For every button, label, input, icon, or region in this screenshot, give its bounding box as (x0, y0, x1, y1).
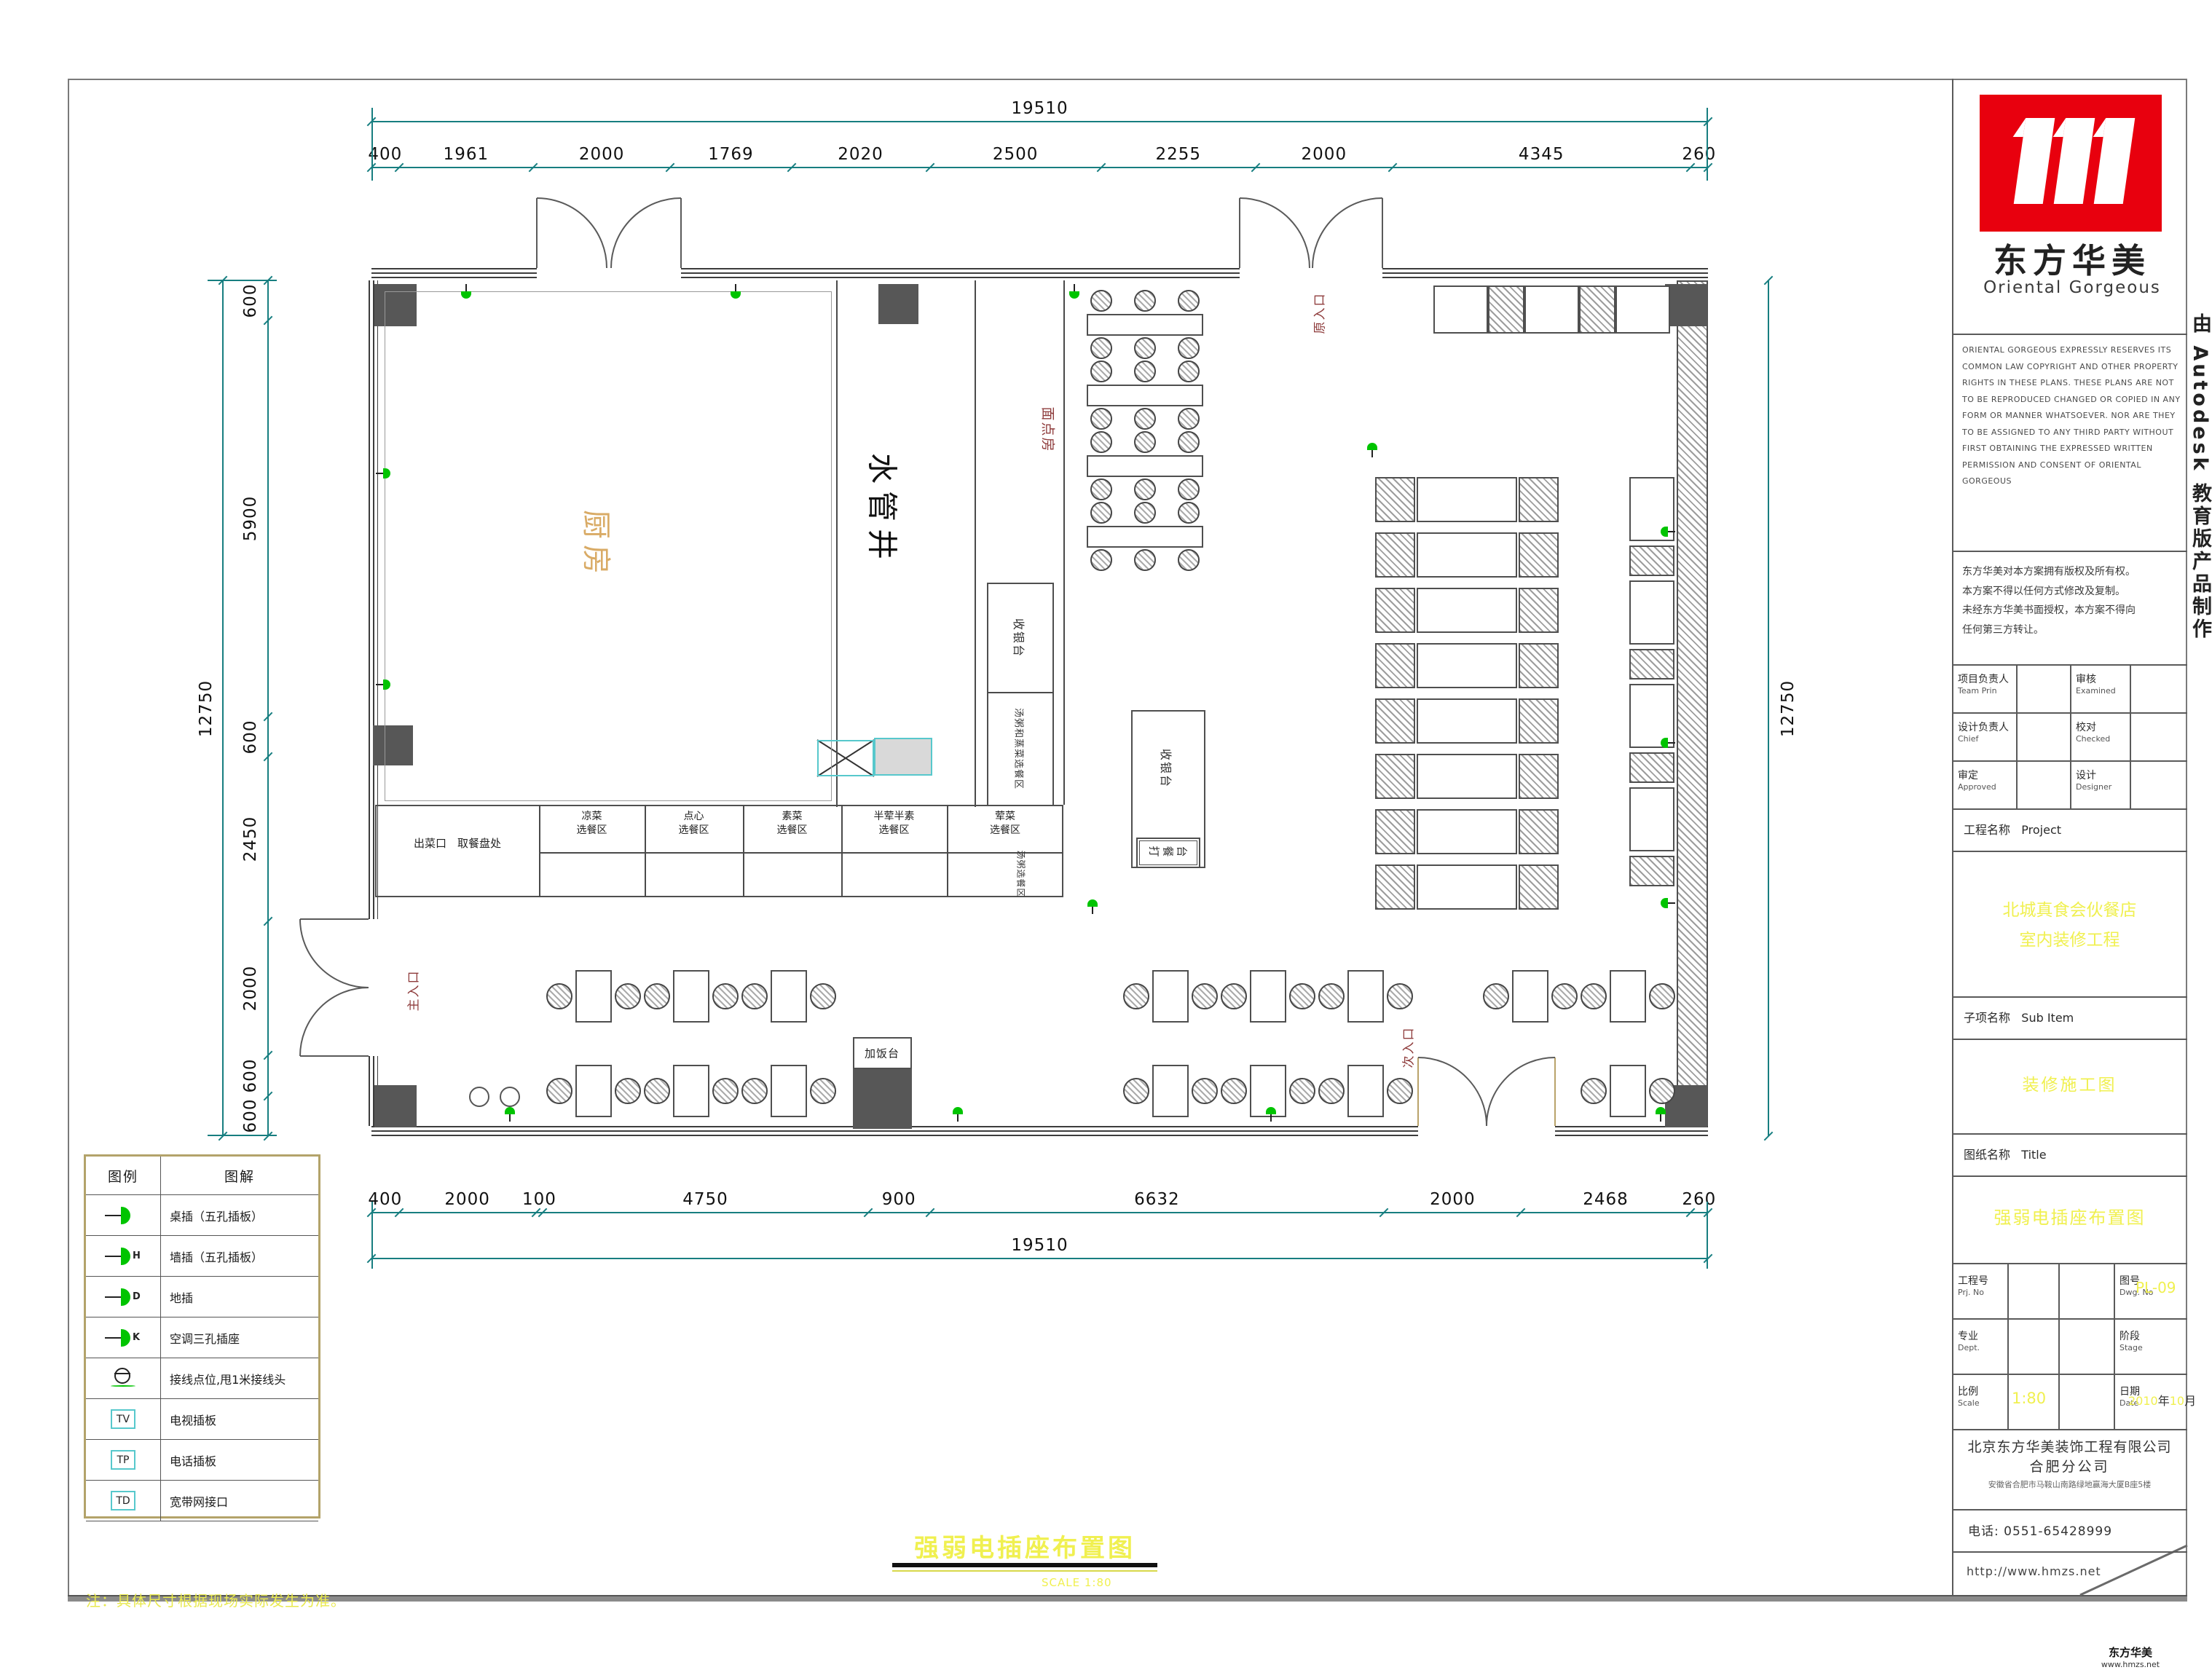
titleblock-line (1952, 334, 2187, 335)
dining-table (1087, 526, 1203, 548)
dimension-total-label: 19510 (1011, 1236, 1068, 1255)
chair (1178, 478, 1200, 500)
plan-label: 原入口 (1310, 293, 1328, 334)
chair (1134, 408, 1156, 430)
personnel-label: 审核Examined (2076, 671, 2127, 696)
dimension-label: 2000 (241, 966, 260, 1012)
chair (1090, 290, 1112, 312)
socket-icon (1661, 527, 1675, 537)
socket-icon (376, 468, 390, 478)
plan-label: 主入口 (404, 970, 422, 1012)
dimension-label: 6632 (1134, 1190, 1180, 1209)
cashier-strip-divider (987, 692, 1054, 693)
titleblock-line (2070, 664, 2071, 808)
booth-seat (1519, 477, 1559, 522)
chair (1134, 431, 1156, 453)
dimension-label: 400 (368, 145, 402, 164)
chair (1178, 408, 1200, 430)
dining-table (1417, 698, 1517, 744)
dimension-label: 260 (1682, 145, 1716, 164)
booth-seat (1629, 856, 1674, 886)
dining-table (771, 970, 807, 1023)
chair (1192, 983, 1218, 1009)
dining-table (1087, 314, 1203, 336)
chair (1387, 1078, 1413, 1104)
wall-bottom (1555, 1126, 1708, 1138)
booth-seat (1629, 545, 1674, 576)
wall-top (1382, 268, 1708, 280)
chair (1289, 1078, 1315, 1104)
booth-seat (1519, 754, 1559, 799)
dimension-total-label: 12750 (1779, 680, 1798, 736)
personnel-label: 设计负责人Chief (1958, 720, 2013, 744)
grid-value: 1:80 (2012, 1390, 2055, 1407)
chair (712, 983, 739, 1009)
booth-seat (1519, 532, 1559, 578)
dining-table (1610, 1065, 1646, 1117)
dimension-line (267, 280, 269, 1136)
dimension-label: 1769 (708, 145, 754, 164)
titleblock-line (1952, 551, 2187, 552)
partition-shaft-east (975, 280, 976, 807)
socket-icon (376, 680, 390, 690)
column (853, 1069, 912, 1129)
chair (712, 1078, 739, 1104)
chair (1551, 983, 1578, 1009)
chair (1221, 1078, 1247, 1104)
dining-table (1417, 477, 1517, 522)
grid-value: PL-09 (2136, 1279, 2185, 1296)
dimension-label: 2468 (1583, 1190, 1629, 1209)
dining-table (575, 970, 612, 1023)
stool (469, 1087, 489, 1107)
counter-cell-label: 半荤半素选餐区 (841, 810, 947, 838)
counter-cell-label: 荤菜选餐区 (947, 810, 1063, 838)
plan-label: 加饭台 (865, 1046, 900, 1061)
grid-label: 专业Dept. (1958, 1328, 2006, 1352)
plan-label: 汤粥选餐区 (1015, 850, 1028, 897)
titleblock-line (2007, 1263, 2009, 1429)
chair (1289, 983, 1315, 1009)
dimension-label: 2500 (993, 145, 1039, 164)
dining-table (1629, 787, 1674, 851)
booth-seat (1519, 864, 1559, 910)
titleblock-line (2058, 1263, 2060, 1429)
partition-kitchen-east (836, 280, 838, 807)
chair (1090, 431, 1112, 453)
booth-seat (1375, 698, 1415, 744)
titleblock-line (1952, 1429, 2187, 1430)
chair (615, 1078, 641, 1104)
chair (810, 983, 836, 1009)
titleblock-line (1952, 808, 2187, 810)
stool (500, 1087, 520, 1107)
dining-table (673, 970, 709, 1023)
booth-table (1524, 285, 1579, 334)
chair (1178, 549, 1200, 571)
grid-label: 阶段Stage (2119, 1328, 2168, 1352)
socket-icon (1266, 1107, 1276, 1122)
chair (1134, 337, 1156, 359)
plan-label: 次入口 (1398, 1027, 1417, 1068)
dimension-label: 4750 (682, 1190, 728, 1209)
chair (1192, 1078, 1218, 1104)
chair (810, 1078, 836, 1104)
dining-table (1417, 864, 1517, 910)
plan-label: 收银台 (1158, 749, 1176, 788)
dimension-label: 2255 (1155, 145, 1201, 164)
grid-label: 比例Scale (1958, 1384, 2006, 1408)
booth-seat (1519, 698, 1559, 744)
chair (1483, 983, 1509, 1009)
dim-extension (208, 280, 277, 281)
dimension-total-label: 12750 (197, 680, 216, 736)
dining-table (1512, 970, 1548, 1023)
floor-box-gray (874, 738, 932, 776)
socket-icon (1367, 443, 1377, 457)
booth-seat (1519, 809, 1559, 854)
dimension-line (371, 121, 1708, 122)
dimension-label: 600 (241, 1099, 260, 1133)
chair (1649, 1078, 1675, 1104)
dining-table (1152, 1065, 1189, 1117)
chair (1090, 549, 1112, 571)
chair (644, 1078, 670, 1104)
chair (1090, 337, 1112, 359)
chair (1123, 983, 1149, 1009)
plan-label: 收银台 (1011, 618, 1028, 658)
chair (1134, 290, 1156, 312)
dimension-label: 100 (522, 1190, 556, 1209)
socket-icon (731, 284, 741, 299)
chair (1581, 983, 1607, 1009)
chair (1134, 549, 1156, 571)
dim-extension (1707, 1202, 1708, 1269)
titleblock-line (1952, 1133, 2187, 1135)
titleblock-line (1952, 996, 2187, 998)
dimension-label: 900 (882, 1190, 916, 1209)
counter-cell-label: 点心选餐区 (645, 810, 743, 838)
chair (1178, 290, 1200, 312)
chair (644, 983, 670, 1009)
counter-cell-label: 出菜口 取餐盘处 (378, 836, 537, 851)
dimension-label: 400 (368, 1190, 402, 1209)
wall-top (371, 268, 537, 280)
socket-icon (1661, 738, 1675, 748)
titleblock-line (2016, 664, 2018, 808)
chair (741, 983, 768, 1009)
booth-seat (1375, 809, 1415, 854)
dimension-line (371, 167, 1708, 168)
column (878, 284, 918, 324)
chair (615, 983, 641, 1009)
socket-icon (953, 1107, 963, 1122)
dimension-label: 4345 (1519, 145, 1564, 164)
grid-date-value: 2010年10月 (2128, 1391, 2185, 1409)
personnel-label: 项目负责人Team Prin (1958, 671, 2013, 696)
drawing-sheet: 东方华美 Oriental Gorgeous ORIENTAL GORGEOUS… (0, 0, 2212, 1678)
dimension-label: 2000 (1430, 1190, 1476, 1209)
dining-table (1152, 970, 1189, 1023)
wall-right-hatched (1677, 280, 1708, 1126)
chair (1090, 408, 1112, 430)
titleblock-line (1952, 1551, 2187, 1553)
titleblock-line (1952, 1039, 2187, 1040)
dim-extension (1707, 108, 1708, 181)
titleblock-line (1952, 1263, 2187, 1264)
chair (1581, 1078, 1607, 1104)
dimension-label: 1961 (444, 145, 489, 164)
dining-table (1629, 580, 1674, 645)
dimension-label: 2000 (444, 1190, 490, 1209)
titleblock-line (2114, 1263, 2115, 1429)
dimension-line (1768, 280, 1769, 1136)
chair (1221, 983, 1247, 1009)
chair (1178, 361, 1200, 382)
personnel-label: 审定Approved (1958, 768, 2013, 792)
booth-table (1615, 285, 1670, 334)
dining-table (1417, 809, 1517, 854)
dining-table (673, 1065, 709, 1117)
dimension-label: 5900 (241, 496, 260, 542)
booth-seat (1629, 752, 1674, 783)
dimension-line (371, 1258, 1708, 1259)
personnel-label: 设计Designer (2076, 768, 2127, 792)
chair (1178, 431, 1200, 453)
dimension-label: 600 (241, 720, 260, 754)
chair (1178, 502, 1200, 524)
chair (1178, 337, 1200, 359)
plan-linework (0, 0, 2212, 1678)
booth-seat (1488, 285, 1524, 334)
titleblock-line (2130, 664, 2131, 808)
dimension-label: 2020 (838, 145, 883, 164)
booth-seat (1375, 643, 1415, 688)
dining-table (1610, 970, 1646, 1023)
chair (546, 983, 572, 1009)
booth-seat (1519, 643, 1559, 688)
titleblock-line (1952, 1374, 2187, 1375)
chair (546, 1078, 572, 1104)
chair (1090, 478, 1112, 500)
dim-extension (208, 1135, 277, 1136)
dimension-label: 2450 (241, 816, 260, 862)
socket-icon (461, 284, 471, 299)
titleblock-line (1952, 1509, 2187, 1510)
partition-pastry-east (1063, 280, 1065, 805)
chair (1318, 1078, 1345, 1104)
dining-table (1417, 643, 1517, 688)
dimension-label: 600 (241, 1059, 260, 1093)
chair (1134, 502, 1156, 524)
dining-table (1417, 532, 1517, 578)
dining-table (1087, 455, 1203, 477)
titleblock-line (1952, 1318, 2187, 1320)
socket-icon (1087, 899, 1098, 914)
plan-label: 水管井 (862, 453, 907, 567)
dining-table (771, 1065, 807, 1117)
socket-icon (505, 1107, 515, 1122)
counter-cell-label: 凉菜选餐区 (539, 810, 645, 838)
booth-seat (1629, 649, 1674, 680)
chair (1090, 361, 1112, 382)
chair (1134, 478, 1156, 500)
chair (741, 1078, 768, 1104)
chair (1318, 983, 1345, 1009)
dining-table (575, 1065, 612, 1117)
booth-seat (1375, 754, 1415, 799)
titleblock-line (1952, 851, 2187, 852)
booth-table (1433, 285, 1488, 334)
chair (1387, 983, 1413, 1009)
grid-label: 工程号Prj. No (1958, 1273, 2006, 1297)
dining-table (1347, 1065, 1384, 1117)
titleblock-line (1952, 1175, 2187, 1177)
column (1665, 284, 1707, 326)
dimension-label: 600 (241, 283, 260, 318)
plan-label: 厨房 (578, 510, 620, 580)
booth-seat (1375, 588, 1415, 633)
socket-icon (1656, 1107, 1666, 1122)
chair (1123, 1078, 1149, 1104)
booth-seat (1375, 477, 1415, 522)
dim-extension (371, 108, 373, 181)
floor-box-crossed (817, 740, 874, 776)
dining-table (1087, 385, 1203, 406)
booth-seat (1579, 285, 1615, 334)
counter-cell-label: 素菜选餐区 (743, 810, 841, 838)
booth-seat (1375, 532, 1415, 578)
dimension-label: 2000 (1302, 145, 1347, 164)
socket-icon (1661, 898, 1675, 908)
chair (1134, 361, 1156, 382)
personnel-label: 校对Checked (2076, 720, 2127, 744)
chair (1649, 983, 1675, 1009)
socket-icon (1069, 284, 1079, 299)
counter-line (539, 852, 1063, 854)
dining-table (1417, 754, 1517, 799)
dimension-line (371, 1212, 1708, 1213)
plan-label: 打餐台 (1147, 846, 1189, 861)
wall-top (681, 268, 1240, 280)
dim-extension (371, 1202, 373, 1269)
column (374, 1085, 417, 1127)
dimension-total-label: 19510 (1011, 99, 1068, 118)
dimension-label: 2000 (579, 145, 625, 164)
booth-seat (1375, 864, 1415, 910)
chair (1090, 502, 1112, 524)
dimension-line (222, 280, 224, 1136)
dining-table (1417, 588, 1517, 633)
dining-table (1347, 970, 1384, 1023)
dining-table (1250, 970, 1286, 1023)
plan-label: 面点房 (1039, 406, 1059, 452)
plan-label: 汤粥和蒸菜选餐区 (1013, 708, 1027, 789)
booth-seat (1519, 588, 1559, 633)
dimension-label: 260 (1682, 1190, 1716, 1209)
